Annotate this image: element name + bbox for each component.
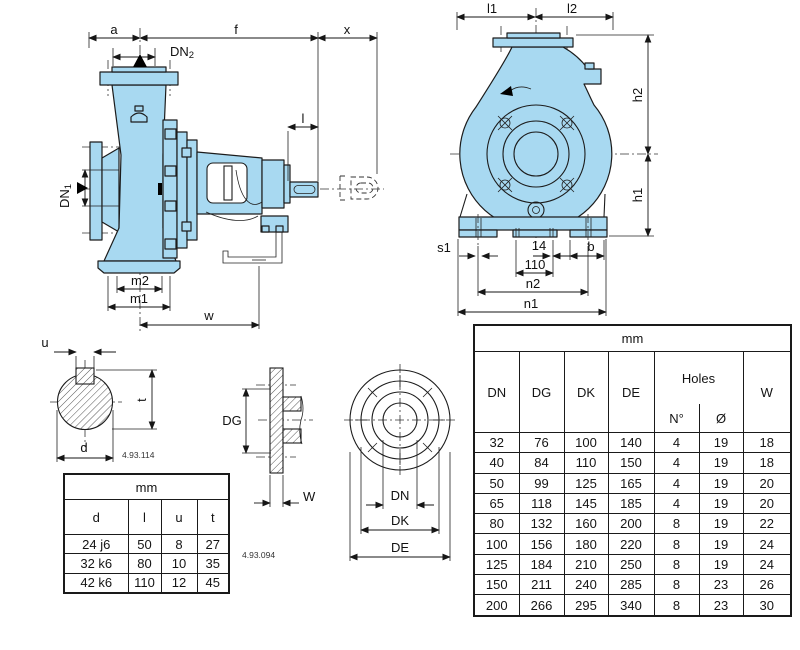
cell: 19 [699,473,743,493]
cell: 250 [608,554,654,574]
cell: 23 [699,595,743,616]
base-flange [98,261,180,273]
pump-end-view: l1 l2 h2 h1 s1 14 b 110 n2 n1 [437,1,658,316]
cell: 125 [564,473,608,493]
dim-l2: l2 [567,1,577,16]
dim-m2: m2 [131,273,149,288]
table-row: 15021124028582326 [474,575,791,595]
cell: 160 [564,514,608,534]
cell: 132 [519,514,564,534]
cell: 165 [608,473,654,493]
flange-profile-detail: DG W 4.93.094 [222,368,316,560]
dim-m1: m1 [130,291,148,306]
col-header-l: l [128,500,161,535]
cell: 19 [699,453,743,473]
suction-cone [102,148,119,232]
cell: 22 [743,514,791,534]
cell: 26 [743,575,791,595]
cell: 18 [743,433,791,453]
table-row: 509912516541920 [474,473,791,493]
dim-slot-pitch: 110 [525,257,546,272]
table-row: 20026629534082330 [474,595,791,616]
cell: 20 [743,493,791,513]
col-header-dn: DN [474,352,519,433]
cell: 210 [564,554,608,574]
cell: 145 [564,493,608,513]
col-header-de: DE [608,352,654,433]
cell: 24 j6 [64,535,128,554]
cell: 4 [654,453,699,473]
dim-w: w [203,308,214,323]
cell: 19 [699,433,743,453]
casing-cover-ring [163,120,177,258]
cell: 8 [654,514,699,534]
cell: 42 k6 [64,573,128,593]
cell: 45 [197,573,229,593]
table-row: 8013216020081922 [474,514,791,534]
cell: 110 [128,573,161,593]
dim-d: d [80,440,87,455]
dim-a: a [110,22,118,37]
cell: 8 [654,575,699,595]
bearing-housing [262,160,284,208]
cell: 27 [197,535,229,554]
table-row: 12518421025081924 [474,554,791,574]
cell: 40 [474,453,519,473]
cell: 266 [519,595,564,616]
cell: 150 [474,575,519,595]
unit-header: mm [474,325,791,352]
suction-flow-arrow-icon [77,182,88,194]
cell: 84 [519,453,564,473]
dim-h1: h1 [630,188,645,202]
cell: 184 [519,554,564,574]
dim-b: b [587,239,594,254]
cell: 80 [474,514,519,534]
cell: 8 [654,595,699,616]
cell: 220 [608,534,654,554]
table-row: 42 k6 110 12 45 [64,573,229,593]
drawing-ref: 4.93.114 [122,450,155,460]
cell: 35 [197,554,229,573]
dim-dk: DK [391,513,409,528]
cell: 156 [519,534,564,554]
cell: 30 [743,595,791,616]
cell: 20 [743,473,791,493]
cell: 4 [654,433,699,453]
flange-plate-section [270,368,283,473]
col-header-holes-dia: Ø [699,404,743,433]
drawing-ref-2: 4.93.094 [242,550,275,560]
cell: 8 [161,535,197,554]
dim-w-flange: W [303,489,316,504]
dim-dn: DN [391,488,410,503]
cell: 18 [743,453,791,473]
cell: 285 [608,575,654,595]
cell: 340 [608,595,654,616]
flange-dimensions-table: mm DN DG DK DE Holes W N° Ø 327610014041… [473,324,792,617]
cell: 295 [564,595,608,616]
cell: 19 [699,514,743,534]
table-row: 32 k6 80 10 35 [64,554,229,573]
cell: 76 [519,433,564,453]
col-header-d: d [64,500,128,535]
cell: 12 [161,573,197,593]
col-header-holes: Holes [654,352,743,405]
col-header-dk: DK [564,352,608,433]
cell: 50 [128,535,161,554]
dim-x: x [344,22,351,37]
suction-flange [90,142,102,240]
table-row: 10015618022081924 [474,534,791,554]
cell: 140 [608,433,654,453]
dim-s1: s1 [437,240,451,255]
dim-l1: l1 [487,1,497,16]
cell: 32 k6 [64,554,128,573]
dim-n1: n1 [524,296,538,311]
cell: 180 [564,534,608,554]
cell: 23 [699,575,743,595]
dim-l: l [302,111,305,126]
cell: 110 [564,453,608,473]
shaft-dimensions-table: mm d l u t 24 j6 50 8 27 32 k6 80 10 35 … [63,473,230,594]
flange-front-detail: DN DK DE [344,364,456,561]
col-header-t: t [197,500,229,535]
pump-side-view: a f x DN2 DN1 l m2 m1 w [57,22,384,332]
cell: 19 [699,554,743,574]
pump-dimensions-page: a f x DN2 DN1 l m2 m1 w [0,0,800,650]
dim-n2: n2 [526,276,540,291]
dim-slot-width: 14 [532,238,546,253]
cell: 100 [564,433,608,453]
col-header-dg: DG [519,352,564,433]
cell: 24 [743,554,791,574]
discharge-flange [100,72,178,85]
table-row: 6511814518541920 [474,493,791,513]
cell: 24 [743,534,791,554]
support-foot [223,232,282,263]
bearing-end-cap [284,165,290,203]
dim-dn2: DN2 [170,44,194,61]
dim-dg: DG [222,413,242,428]
shaft-end-detail: u t d 4.93.114 [41,335,157,462]
cell: 10 [161,554,197,573]
cell: 80 [128,554,161,573]
cell: 125 [474,554,519,574]
cell: 50 [474,473,519,493]
dim-t: t [134,398,149,402]
shaft-end-phantom [340,176,378,200]
dim-de: DE [391,540,409,555]
cell: 65 [474,493,519,513]
cell: 19 [699,534,743,554]
key-section [76,368,94,384]
dim-dn1: DN1 [57,184,74,208]
dim-u: u [41,335,48,350]
cell: 8 [654,534,699,554]
cell: 185 [608,493,654,513]
table-row: 408411015041918 [474,453,791,473]
dim-f: f [234,22,238,37]
unit-header: mm [64,474,229,500]
cell: 32 [474,433,519,453]
table-row: 24 j6 50 8 27 [64,535,229,554]
cell: 211 [519,575,564,595]
table-row: 327610014041918 [474,433,791,453]
cell: 19 [699,493,743,513]
dim-h2: h2 [630,88,645,102]
col-header-u: u [161,500,197,535]
cell: 200 [608,514,654,534]
cell: 150 [608,453,654,473]
cell: 99 [519,473,564,493]
col-header-w: W [743,352,791,433]
cell: 240 [564,575,608,595]
cell: 200 [474,595,519,616]
cell: 118 [519,493,564,513]
lantern-window [207,163,247,203]
end-discharge-flange [493,38,573,47]
cell: 100 [474,534,519,554]
discharge-flow-arrow-icon [133,54,147,67]
cell: 4 [654,473,699,493]
cell: 4 [654,493,699,513]
vent-plug [131,113,147,122]
cell: 8 [654,554,699,574]
col-header-holes-n: N° [654,404,699,433]
